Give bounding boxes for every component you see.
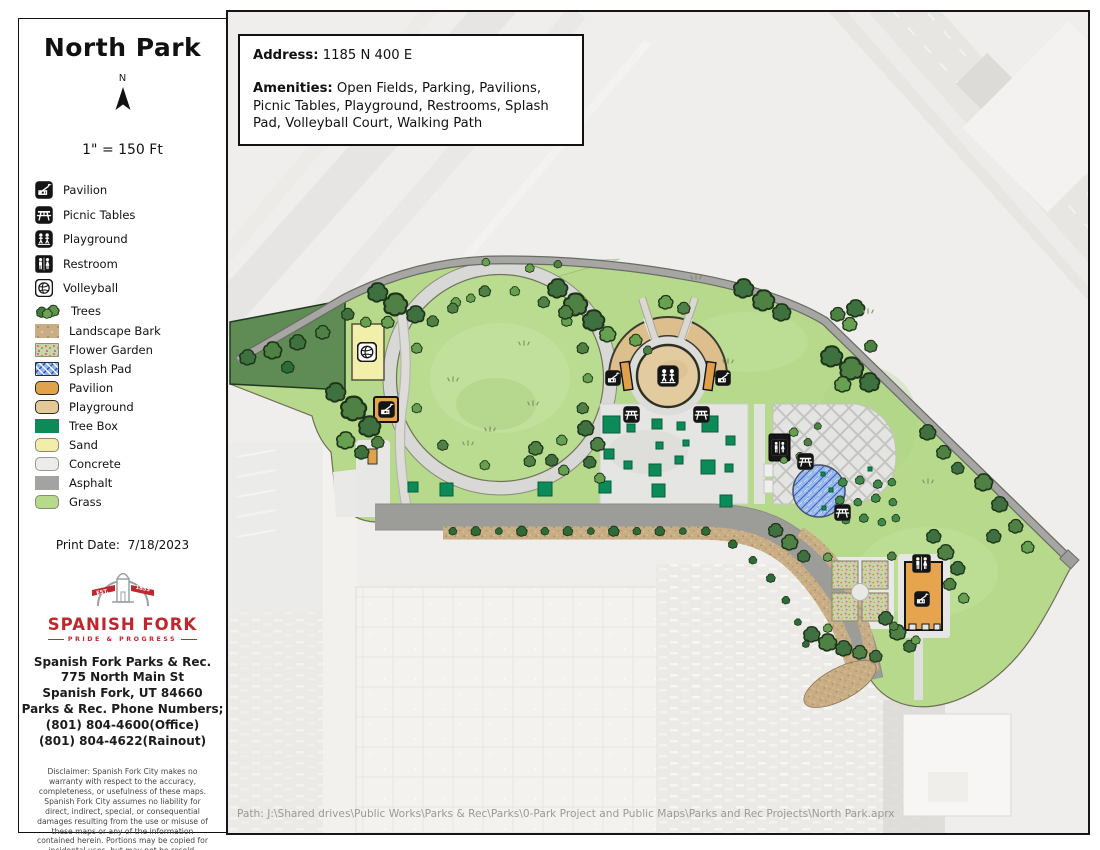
pavilion-swatch bbox=[35, 381, 59, 395]
grass-swatch bbox=[35, 495, 59, 509]
legend-item-grass: Grass bbox=[35, 493, 226, 512]
address-info-box: Address: 1185 N 400 E Amenities: Open Fi… bbox=[238, 34, 584, 146]
playground-swatch bbox=[35, 400, 59, 414]
spanish-fork-logo: EST. 1855 SPANISH FORK PRIDE & PROGRESS bbox=[48, 562, 197, 643]
pavilion-icon-southeast bbox=[914, 591, 929, 606]
legend-item-sand: Sand bbox=[35, 436, 226, 455]
sand-swatch bbox=[35, 438, 59, 452]
landscape-bark-swatch bbox=[35, 324, 59, 338]
print-date: Print Date: 7/18/2023 bbox=[56, 538, 189, 552]
playground-icon bbox=[658, 366, 679, 387]
concrete-swatch bbox=[35, 457, 59, 471]
legend-item-flower-garden: Flower Garden bbox=[35, 341, 226, 360]
legend-item-picnic-tables: Picnic Tables bbox=[35, 203, 226, 228]
logo-tagline: PRIDE & PROGRESS bbox=[48, 636, 197, 643]
logo-name: SPANISH FORK bbox=[48, 615, 197, 634]
address-label: Address: bbox=[253, 48, 319, 63]
legend-item-playground-fill: Playground bbox=[35, 398, 226, 417]
legend-item-playground-icon: Playground bbox=[35, 227, 226, 252]
legend: Pavilion Picnic Tables Playground Restro… bbox=[19, 178, 226, 512]
legend-item-landscape-bark: Landscape Bark bbox=[35, 322, 226, 341]
legend-item-restroom: Restroom bbox=[35, 252, 226, 277]
park-title: North Park bbox=[44, 33, 201, 62]
amenities-label: Amenities: bbox=[253, 81, 333, 96]
picnic-table-icon bbox=[35, 206, 53, 224]
contact-block: Spanish Fork Parks & Rec. 775 North Main… bbox=[22, 655, 224, 750]
spanish-fork-emblem-icon: EST. 1855 bbox=[87, 562, 159, 610]
picnic-icon-3 bbox=[797, 453, 813, 469]
restroom-building bbox=[769, 434, 790, 461]
picnic-icon-1 bbox=[623, 406, 639, 422]
volleyball-icon bbox=[35, 279, 53, 297]
address-value: 1185 N 400 E bbox=[323, 48, 413, 63]
north-label: N bbox=[110, 74, 136, 84]
legend-item-volleyball: Volleyball bbox=[35, 276, 226, 301]
tree-box-swatch bbox=[35, 419, 59, 433]
page: North Park N 1" = 150 Ft Pavilion Picnic… bbox=[0, 0, 1100, 850]
north-arrow: N bbox=[110, 74, 136, 116]
file-path-caption: Path: J:\Shared drives\Public Works\Park… bbox=[237, 808, 895, 820]
legend-item-concrete: Concrete bbox=[35, 455, 226, 474]
pavilion-icon-west bbox=[378, 401, 394, 417]
scale-text: 1" = 150 Ft bbox=[82, 142, 163, 158]
playground-icon bbox=[35, 230, 53, 248]
pavilion-icon bbox=[35, 181, 53, 199]
legend-item-pavilion-fill: Pavilion bbox=[35, 379, 226, 398]
legend-item-trees: Trees bbox=[35, 301, 226, 322]
pavilion-icon-plaza-left bbox=[605, 370, 620, 385]
legend-item-pavilion-icon: Pavilion bbox=[35, 178, 226, 203]
park-map: Address: 1185 N 400 E Amenities: Open Fi… bbox=[226, 10, 1090, 835]
sidebar: North Park N 1" = 150 Ft Pavilion Picnic… bbox=[18, 18, 227, 833]
picnic-icon-2 bbox=[693, 406, 709, 422]
restroom-icon bbox=[35, 255, 53, 273]
flower-garden-swatch bbox=[35, 343, 59, 357]
north-arrow-icon bbox=[110, 85, 136, 113]
disclaimer: Disclaimer: Spanish Fork City makes no w… bbox=[34, 767, 212, 850]
trees-icon bbox=[35, 303, 61, 319]
picnic-icon-4 bbox=[834, 504, 850, 520]
asphalt-swatch bbox=[35, 476, 59, 490]
volleyball-icon bbox=[358, 343, 377, 362]
splash-pad-swatch bbox=[35, 362, 59, 376]
pavilion-icon-plaza-right bbox=[715, 370, 730, 385]
legend-item-tree-box: Tree Box bbox=[35, 417, 226, 436]
legend-item-splash-pad: Splash Pad bbox=[35, 360, 226, 379]
legend-item-asphalt: Asphalt bbox=[35, 474, 226, 493]
restroom-icon-southeast bbox=[912, 554, 930, 572]
